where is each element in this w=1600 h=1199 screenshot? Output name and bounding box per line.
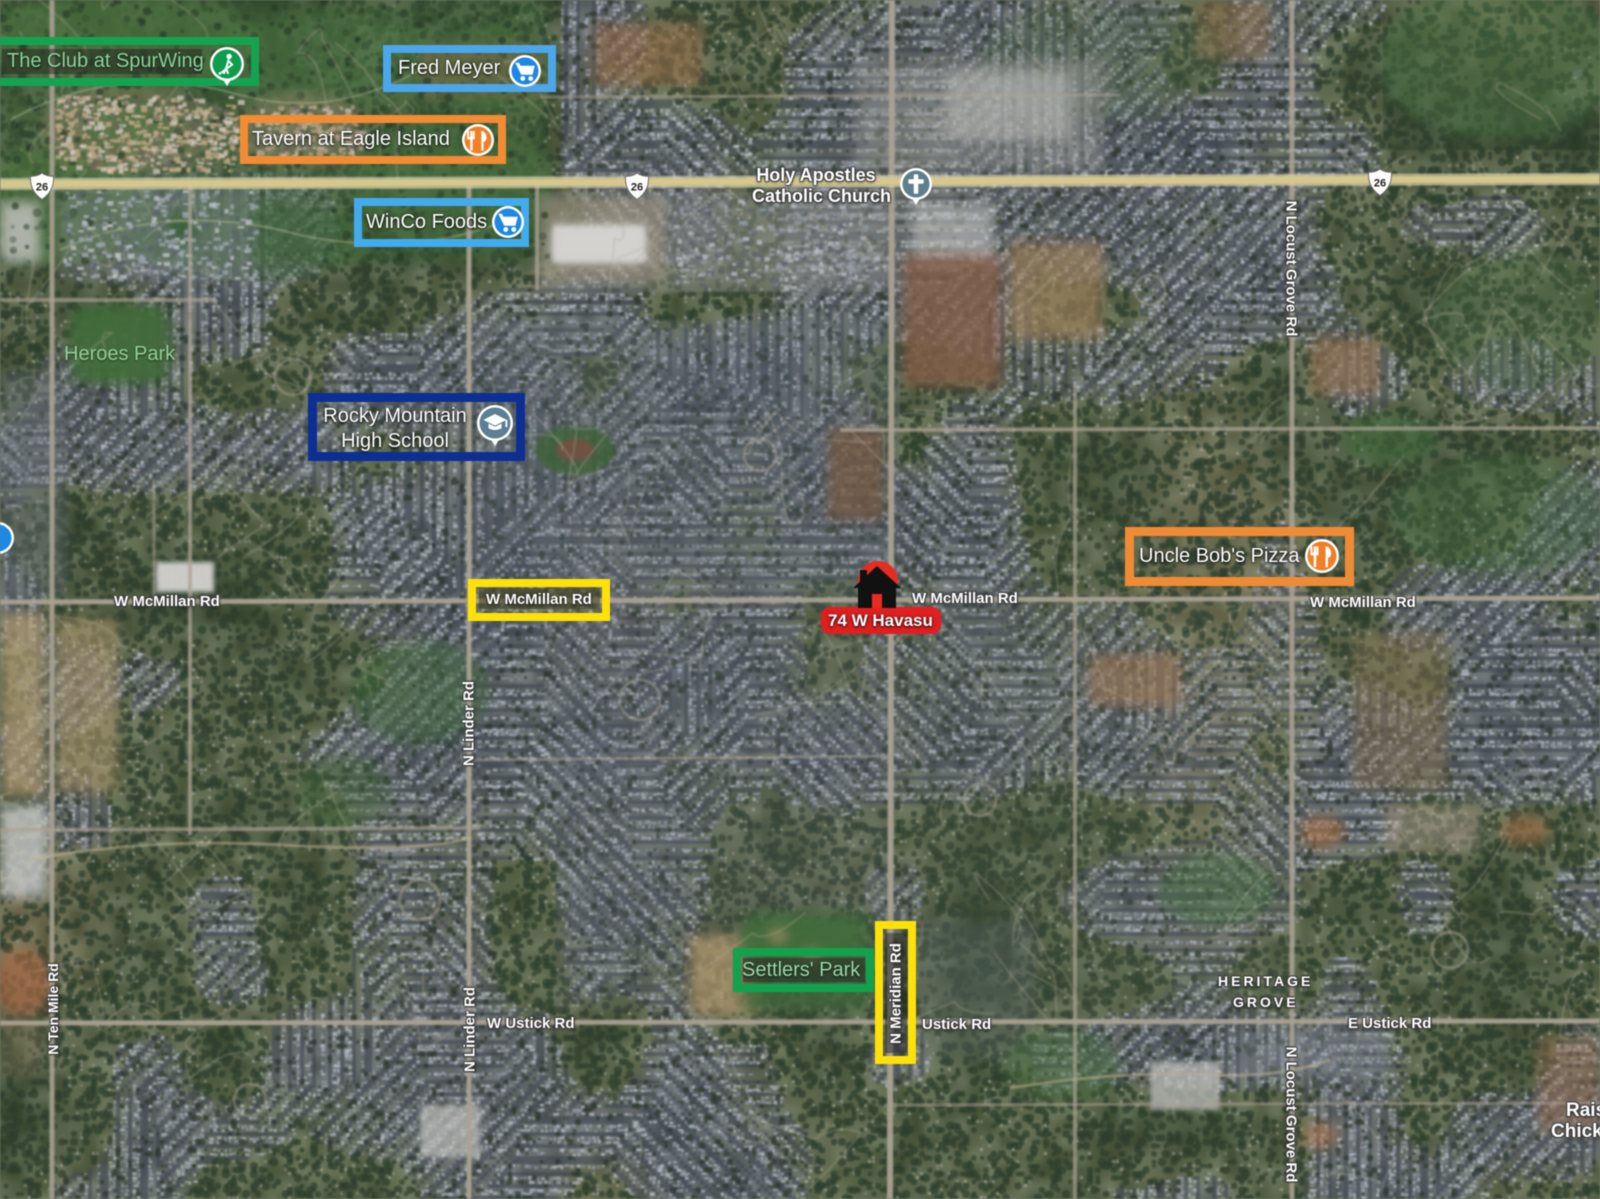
svg-text:26: 26 <box>631 181 643 193</box>
svg-text:26: 26 <box>36 181 48 193</box>
svg-text:26: 26 <box>1374 177 1386 189</box>
